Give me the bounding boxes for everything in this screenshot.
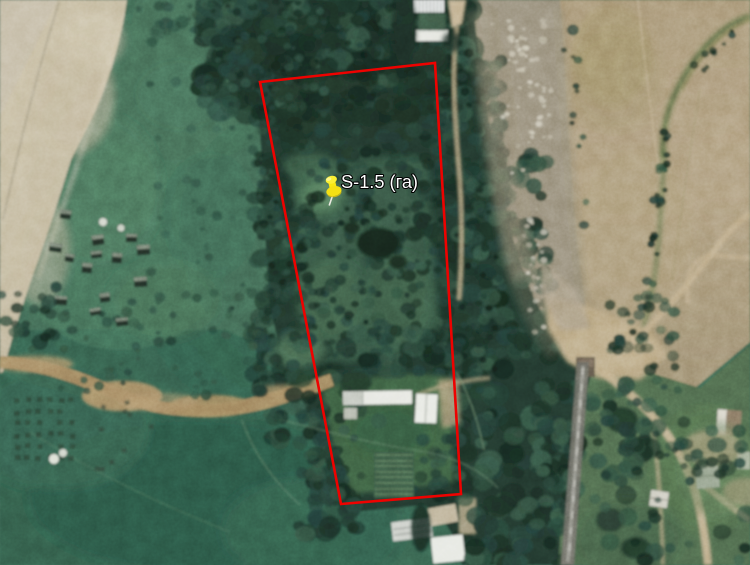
svg-text:S-1.5 (га): S-1.5 (га)	[341, 172, 418, 192]
